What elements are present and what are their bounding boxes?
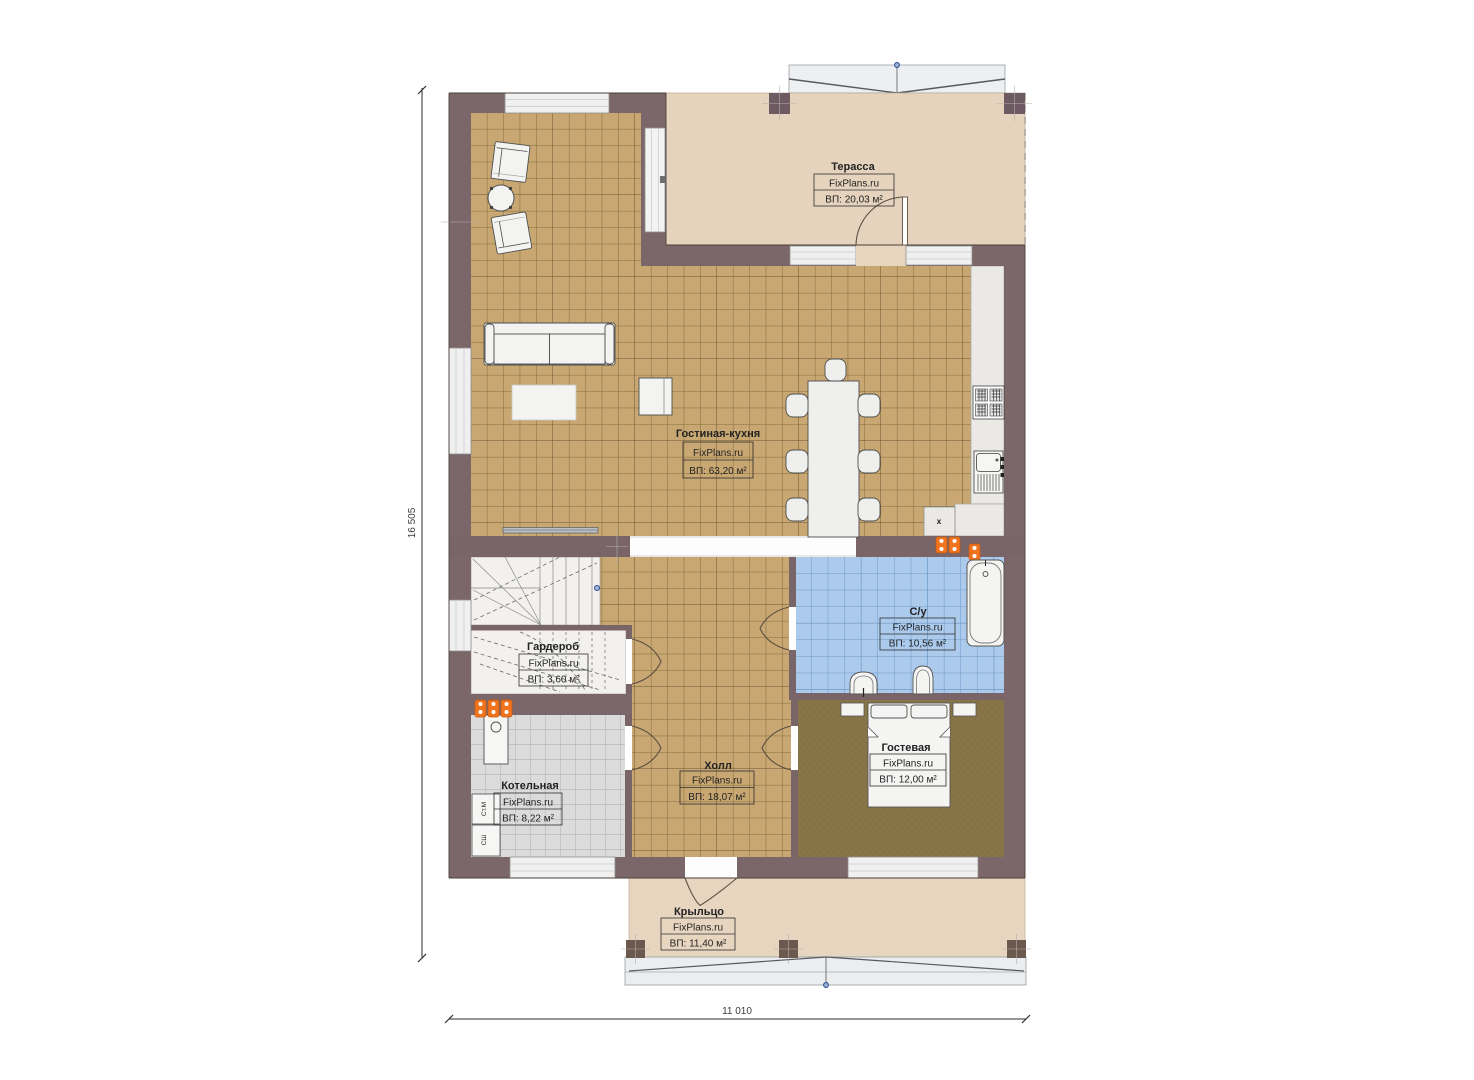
svg-text:ВП: 12,00 м²: ВП: 12,00 м² [879, 775, 937, 786]
svg-text:ВП: 10,56 м²: ВП: 10,56 м² [889, 639, 947, 650]
svg-text:ВП: 18,07 м²: ВП: 18,07 м² [688, 792, 746, 803]
svg-text:С/у: С/у [909, 606, 927, 618]
svg-text:ВП: 3,60 м²: ВП: 3,60 м² [528, 675, 581, 686]
svg-text:Котельная: Котельная [501, 780, 559, 792]
svg-text:ВП: 11,40 м²: ВП: 11,40 м² [670, 939, 727, 950]
svg-text:FixPlans.ru: FixPlans.ru [693, 448, 743, 459]
svg-text:FixPlans.ru: FixPlans.ru [503, 798, 553, 809]
svg-text:FixPlans.ru: FixPlans.ru [692, 776, 742, 787]
svg-text:СШ: СШ [481, 835, 488, 846]
svg-text:Терасса: Терасса [831, 161, 875, 173]
svg-text:ВП: 20,03 м²: ВП: 20,03 м² [825, 195, 883, 206]
svg-text:Холл: Холл [704, 760, 732, 772]
svg-text:FixPlans.ru: FixPlans.ru [892, 623, 942, 634]
svg-text:Гардероб: Гардероб [527, 641, 579, 653]
svg-text:Гостиная-кухня: Гостиная-кухня [676, 428, 760, 440]
svg-text:FixPlans.ru: FixPlans.ru [829, 179, 879, 190]
svg-text:Крыльцо: Крыльцо [674, 906, 724, 918]
svg-text:ВП: 8,22 м²: ВП: 8,22 м² [502, 814, 555, 825]
svg-text:FixPlans.ru: FixPlans.ru [883, 759, 933, 770]
svg-text:Ст.М: Ст.М [481, 802, 488, 816]
svg-text:FixPlans.ru: FixPlans.ru [673, 923, 723, 934]
svg-text:FixPlans.ru: FixPlans.ru [528, 659, 578, 670]
svg-text:ВП: 63,20 м²: ВП: 63,20 м² [689, 466, 747, 477]
svg-text:Гостевая: Гостевая [881, 742, 930, 754]
svg-text:x: x [937, 516, 942, 526]
svg-text:11 010: 11 010 [722, 1006, 752, 1017]
svg-text:16 505: 16 505 [407, 507, 418, 538]
